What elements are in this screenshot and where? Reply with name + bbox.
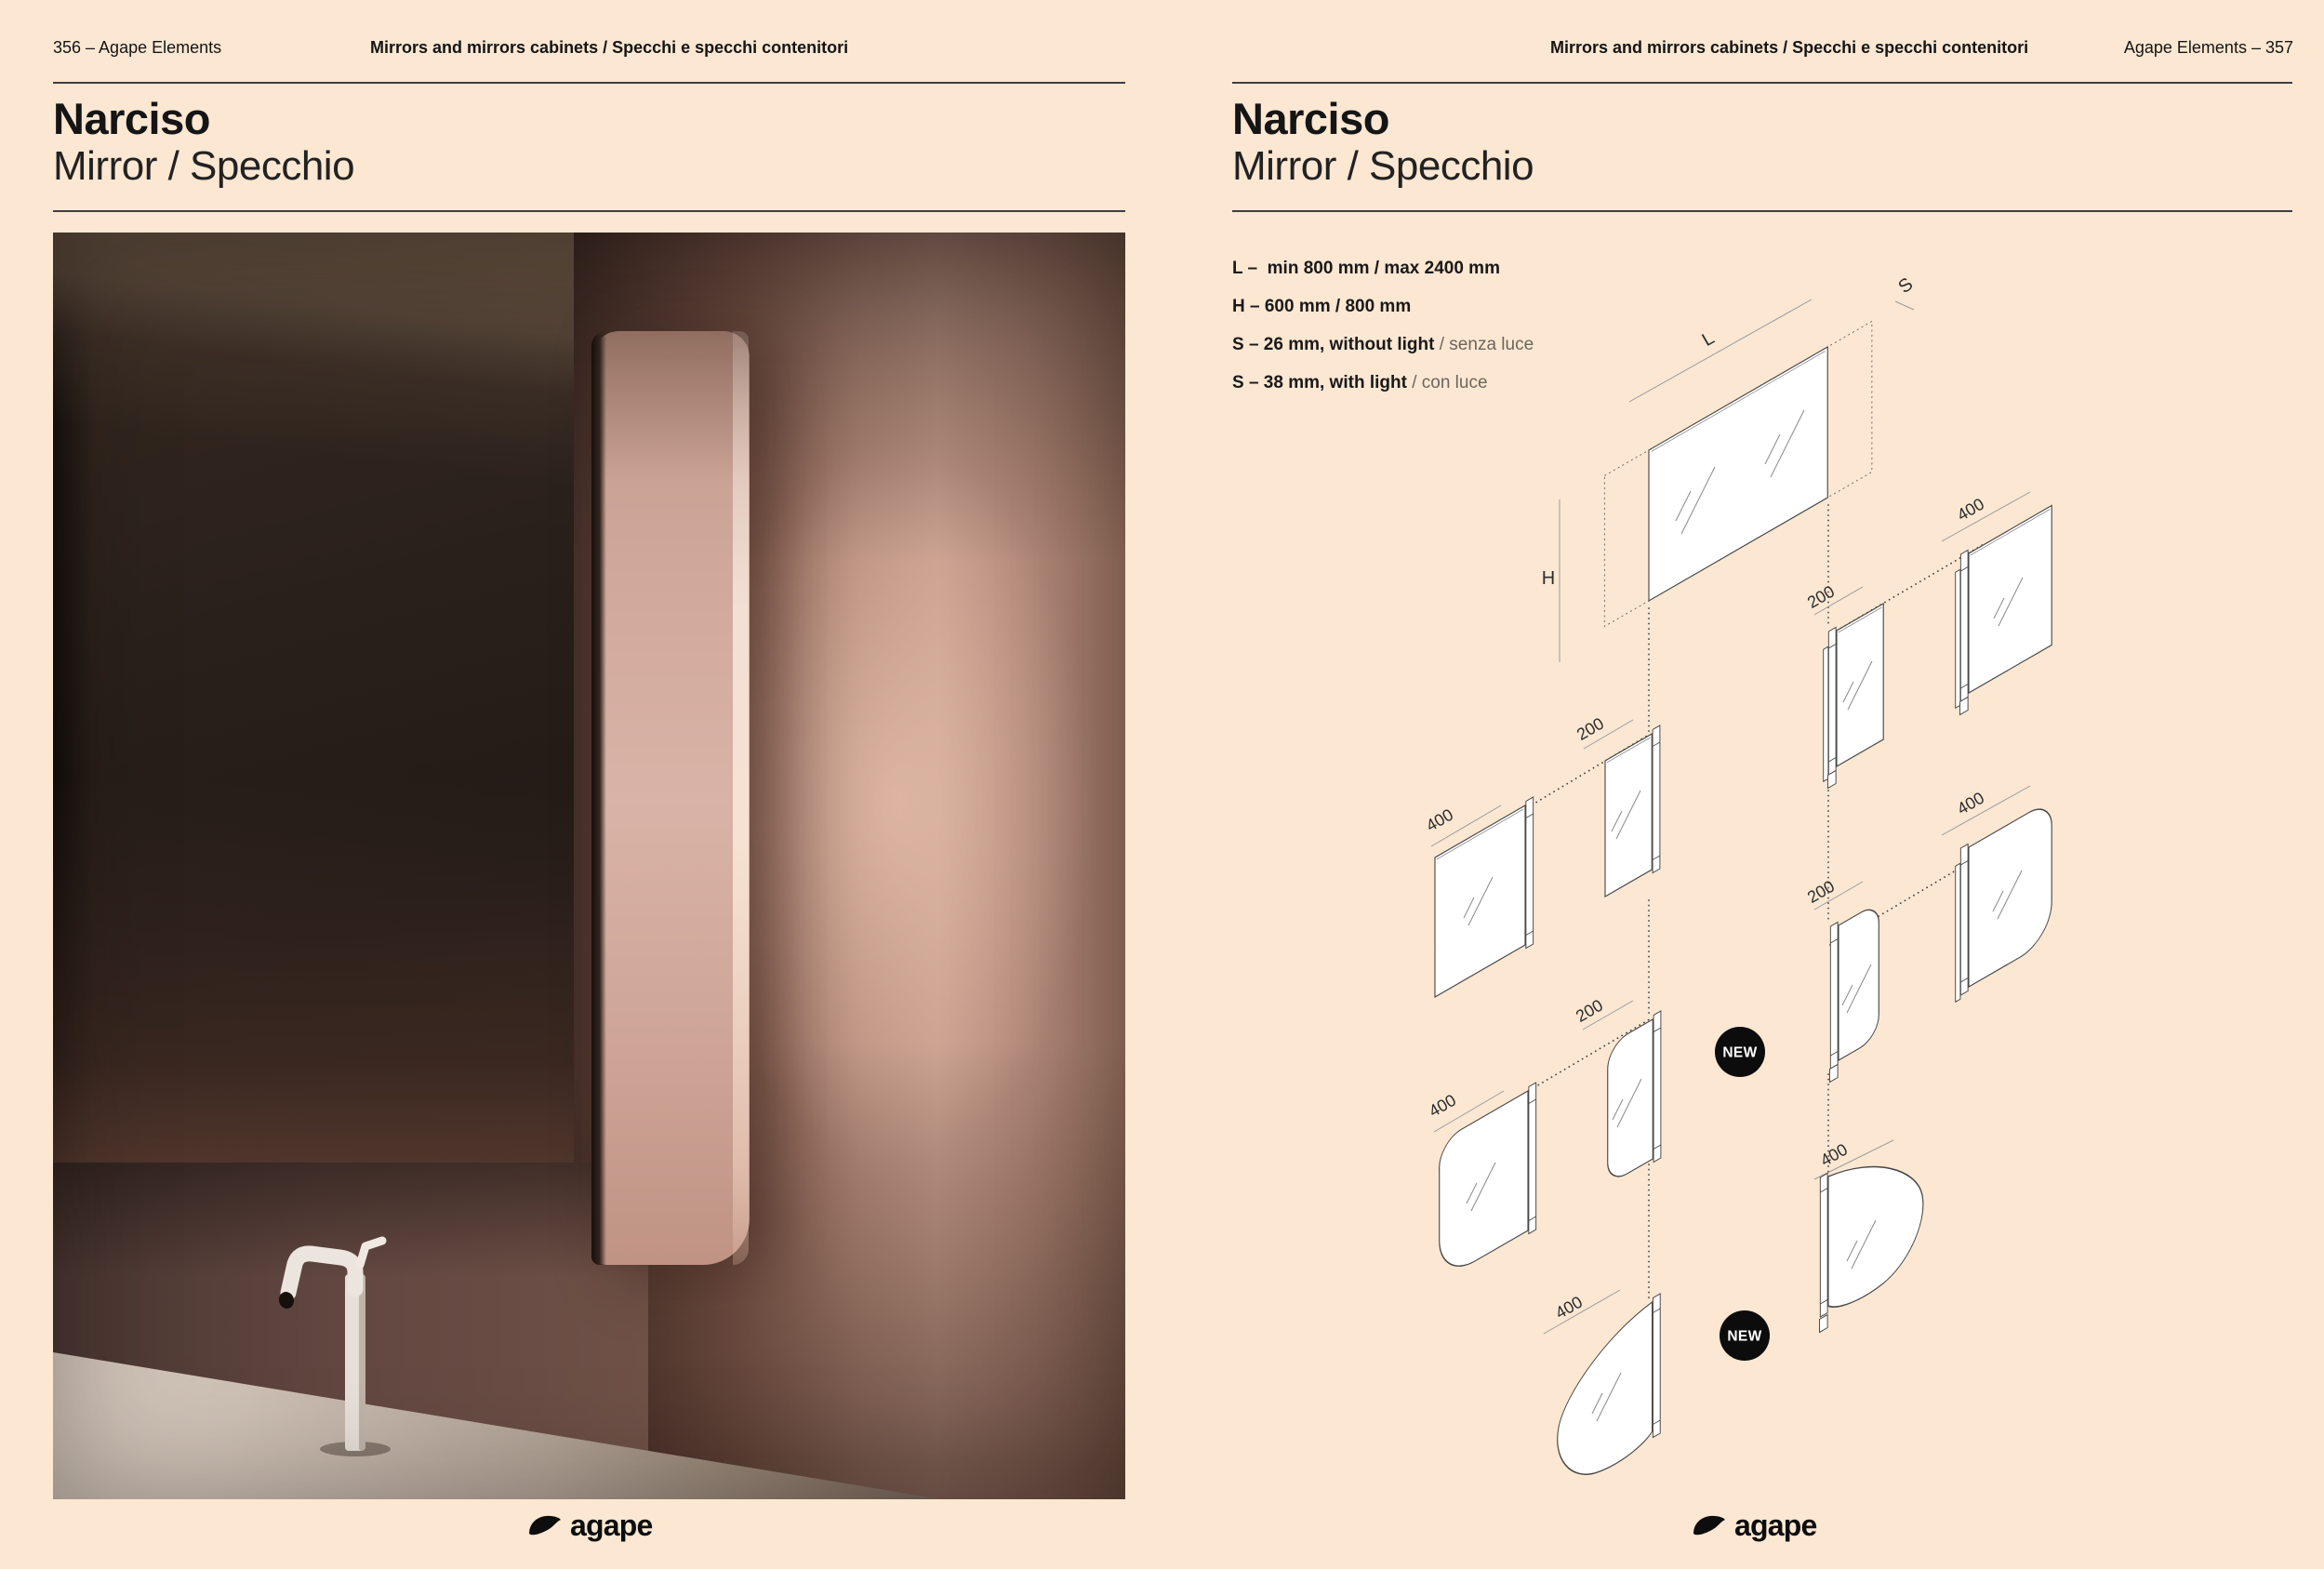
label-H: H [1542,568,1555,589]
spec-depth-nolight: S – 26 mm, without light / senza luce [1232,326,1883,364]
diagram-mirror-200-rounded-left [1608,1011,1661,1189]
dimension-labels: L H S 400 200 400 200 400 200 400 200 40… [1423,273,1987,1322]
agape-logo: agape [528,1509,653,1543]
left-title-block: Narciso Mirror / Specchio [53,82,1125,212]
product-subtitle: Mirror / Specchio [53,143,1125,190]
catalog-spread: 356 – Agape Elements Mirrors and mirrors… [0,0,2324,1569]
diagram-mirror-200-rect-right [1824,600,1884,791]
diagram-mirror-400-rect-right [1956,502,2052,718]
diagram-mirror-200-rect-left [1605,725,1660,900]
left-page-number: 356 – Agape Elements [53,37,221,58]
spec-depth-light: S – 38 mm, with light / con luce [1232,364,1883,402]
spec-length: L – min 800 mm / max 2400 mm [1232,249,1883,287]
label-400: 400 [1954,789,1987,818]
diagram-mirror-400-rounded-left [1440,1083,1536,1285]
dimension-specs: L – min 800 mm / max 2400 mm H – 600 mm … [1232,249,1883,402]
left-section-title: Mirrors and mirrors cabinets / Specchi e… [370,37,848,58]
mirror-shine-lines [1464,410,2023,1421]
agape-leaf-icon [1693,1513,1726,1538]
dotted-axes [1523,505,1985,1298]
label-200: 200 [1804,877,1838,907]
label-400: 400 [1954,495,1987,525]
new-badge-text: NEW [1727,1329,1761,1345]
agape-wordmark: agape [570,1509,653,1543]
diagram-mirror-200-rounded-right [1829,898,1879,1083]
label-400: 400 [1426,1091,1459,1121]
label-200: 200 [1804,582,1838,612]
right-section-title: Mirrors and mirrors cabinets / Specchi e… [1550,37,2028,58]
new-badge-text: NEW [1722,1045,1757,1061]
agape-wordmark: agape [1734,1509,1817,1543]
product-photo [53,233,1125,1499]
agape-logo: agape [1693,1509,1817,1543]
label-400: 400 [1817,1140,1851,1170]
product-subtitle: Mirror / Specchio [1232,143,2292,190]
agape-leaf-icon [528,1513,562,1538]
spec-height: H – 600 mm / 800 mm [1232,287,1883,326]
diagram-mirror-400-rounded-right [1956,796,2052,1003]
diagram-mirror-400-halfround-left [1558,1294,1661,1497]
label-400: 400 [1423,805,1456,835]
product-title: Narciso [1232,95,2292,143]
right-title-block: Narciso Mirror / Specchio [1232,82,2292,212]
label-400: 400 [1552,1293,1586,1323]
right-page-number: Agape Elements – 357 [2124,37,2293,58]
label-200: 200 [1573,996,1606,1026]
new-badge: NEW [1715,1027,1765,1077]
product-title: Narciso [53,95,1125,143]
diagram-mirror-400-halfround-right [1819,1118,1922,1332]
diagram-mirror-400-rect-left [1435,797,1534,1001]
new-badge: NEW [1720,1310,1770,1361]
photo-vignette [53,233,1125,1499]
dimension-lines [1431,299,2030,1334]
label-S: S [1894,273,1917,298]
label-200: 200 [1574,714,1607,744]
